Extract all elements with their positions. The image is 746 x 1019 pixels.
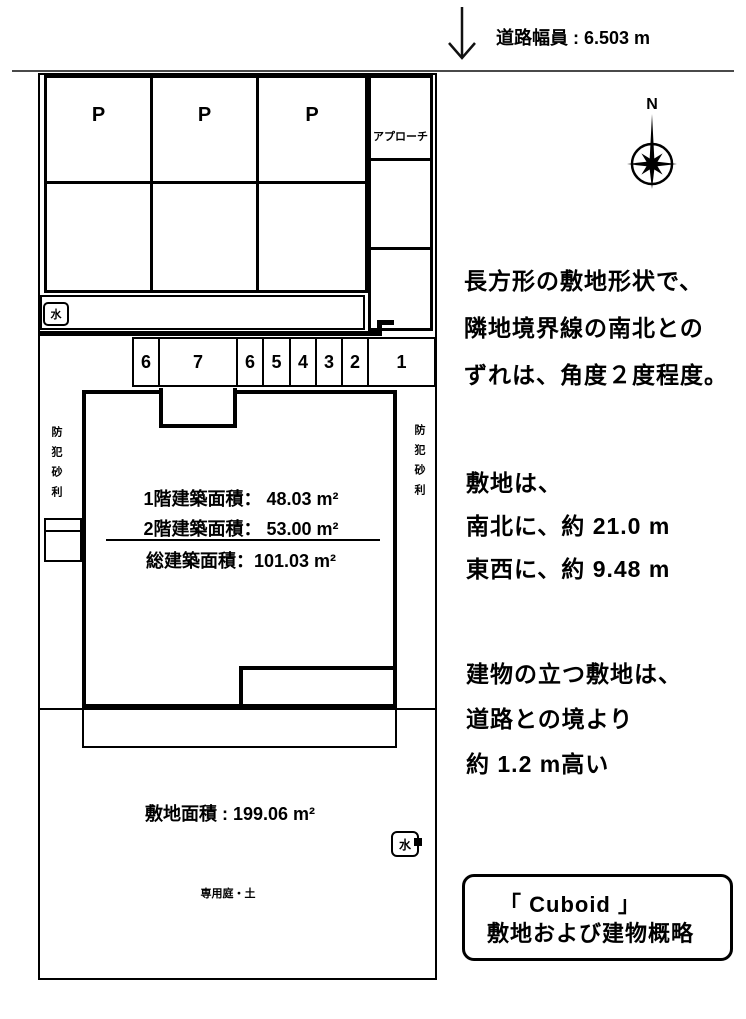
approach-cell-2 <box>368 158 433 250</box>
site-area-label: 敷地面積 : 199.06 m² <box>60 800 400 826</box>
compass-rose-icon <box>605 110 700 200</box>
retaining-wall-line <box>38 331 382 336</box>
note-line: 長方形の敷地形状で、 <box>464 258 728 305</box>
area-sum-rule <box>106 539 380 541</box>
approach-cell: アプローチ <box>368 75 433 161</box>
note-line: ずれは、角度２度程度。 <box>464 352 728 399</box>
site-plan-canvas: 道路幅員 : 6.503 m N P P P アプローチ 水 6 7 6 5 4… <box>0 0 746 1019</box>
gravel-label-right: 防犯砂利 <box>412 424 426 504</box>
bay-box-bottom <box>44 530 82 562</box>
note-line: 東西に、約 9.48 m <box>466 548 670 591</box>
note-line: 南北に、約 21.0 m <box>466 505 670 548</box>
parking-stall-empty <box>47 184 153 290</box>
gravel-label-left: 防犯砂利 <box>49 426 63 506</box>
unit-number-cell: 3 <box>315 337 343 387</box>
entrance-notch <box>159 388 237 428</box>
retaining-wall-step-top <box>377 320 394 325</box>
floor1-area-label: 1階建築面積： 48.03 m² <box>90 485 392 511</box>
parking-stall-empty <box>153 184 259 290</box>
water-meter-badge: 水 <box>43 302 69 326</box>
total-area-label: 総建築面積：101.03 m² <box>90 547 392 573</box>
road-width-label: 道路幅員 : 6.503 m <box>496 24 650 50</box>
note-line: 敷地は、 <box>466 462 670 505</box>
note-line: 建物の立つ敷地は、 <box>466 652 682 697</box>
parking-stall-empty <box>259 184 365 290</box>
building-step-line <box>239 666 397 670</box>
parking-stall: P <box>259 78 365 184</box>
water-strip <box>40 295 365 330</box>
unit-number-cell: 4 <box>289 337 317 387</box>
unit-number-cell: 5 <box>262 337 291 387</box>
title-box: 「 Cuboid 」 敷地および建物概略 <box>462 874 733 961</box>
parking-stall: P <box>153 78 259 184</box>
title-box-name: 「 Cuboid 」 <box>465 890 730 919</box>
note-site-dimensions: 敷地は、 南北に、約 21.0 m 東西に、約 9.48 m <box>466 462 670 591</box>
unit-number-cell: 1 <box>367 337 436 387</box>
unit-number-cell: 2 <box>341 337 369 387</box>
water-spigot-mark <box>414 838 422 846</box>
note-line: 約 1.2 m高い <box>466 742 682 787</box>
road-boundary-line <box>12 70 734 72</box>
building-step-wall <box>239 666 243 708</box>
unit-number-cell: 7 <box>158 337 238 387</box>
parking-grid: P P P <box>44 75 368 293</box>
parking-stall: P <box>47 78 153 184</box>
floor2-area-label: 2階建築面積： 53.00 m² <box>90 515 392 541</box>
approach-cell-3 <box>368 247 433 331</box>
terrace-strip <box>82 708 397 748</box>
note-line: 隣地境界線の南北との <box>464 305 728 352</box>
note-site-shape: 長方形の敷地形状で、 隣地境界線の南北との ずれは、角度２度程度。 <box>464 258 728 399</box>
garden-label: 専用庭・土 <box>158 885 298 901</box>
road-direction-arrow-icon <box>440 4 484 62</box>
note-line: 道路との境より <box>466 697 682 742</box>
note-site-elevation: 建物の立つ敷地は、 道路との境より 約 1.2 m高い <box>466 652 682 787</box>
unit-number-cell: 6 <box>236 337 264 387</box>
unit-number-cell: 6 <box>132 337 160 387</box>
title-box-subtitle: 敷地および建物概略 <box>465 919 730 948</box>
